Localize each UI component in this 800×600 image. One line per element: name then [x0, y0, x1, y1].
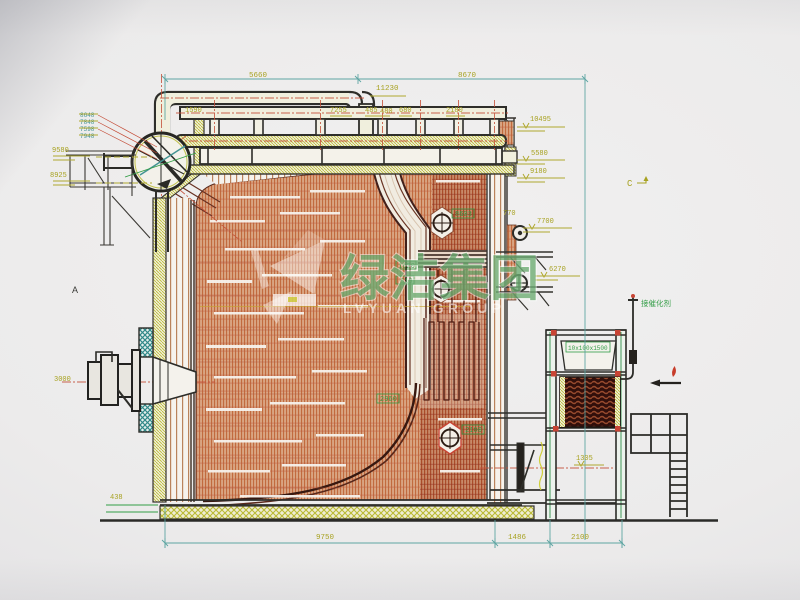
svg-text:LVYUAN GROUP: LVYUAN GROUP	[343, 300, 505, 316]
svg-text:绿洁集团: 绿洁集团	[340, 252, 540, 306]
